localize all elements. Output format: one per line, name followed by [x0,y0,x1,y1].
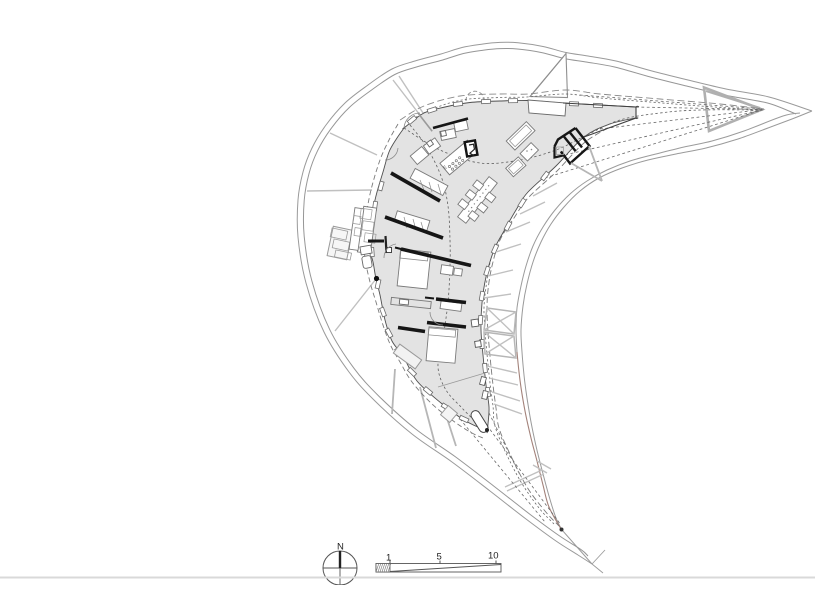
svg-text:5: 5 [437,552,442,563]
svg-text:N: N [337,542,344,553]
svg-text:1: 1 [386,553,391,564]
svg-text:10: 10 [488,551,499,562]
